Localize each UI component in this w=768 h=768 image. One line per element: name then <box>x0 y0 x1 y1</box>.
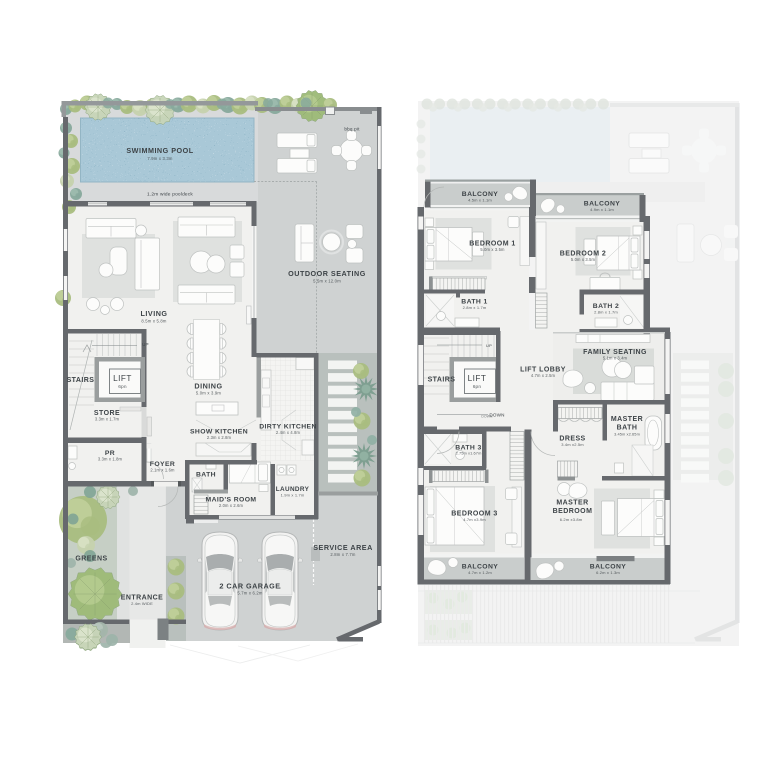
svg-text:6.2m x3.8m: 6.2m x3.8m <box>560 517 583 522</box>
svg-text:bbq pit: bbq pit <box>344 127 360 132</box>
svg-text:2.75m x1.67m: 2.75m x1.67m <box>456 451 482 456</box>
svg-text:BATH: BATH <box>196 472 216 479</box>
svg-text:MASTER: MASTER <box>611 416 643 423</box>
svg-text:6pn: 6pn <box>473 384 482 390</box>
svg-text:SERVICE AREA: SERVICE AREA <box>313 543 373 552</box>
svg-text:2.8m x 7.7m: 2.8m x 7.7m <box>330 552 356 557</box>
svg-text:SWIMMING POOL: SWIMMING POOL <box>126 146 193 155</box>
svg-text:4.7m x 1.2m: 4.7m x 1.2m <box>468 570 492 575</box>
svg-text:STAIRS: STAIRS <box>67 377 95 384</box>
svg-text:2.8m x 1.7m: 2.8m x 1.7m <box>463 305 487 310</box>
svg-text:5.0m x 3.5m: 5.0m x 3.5m <box>571 257 596 262</box>
svg-text:5.0m x 3.9m: 5.0m x 3.9m <box>196 391 222 396</box>
svg-text:LIFT: LIFT <box>468 374 487 383</box>
svg-text:MASTER: MASTER <box>556 500 588 507</box>
svg-text:3.3m x 1.7m: 3.3m x 1.7m <box>95 417 120 422</box>
svg-text:4.9m x 1.1m: 4.9m x 1.1m <box>590 207 614 212</box>
svg-text:5.5m x 12.0m: 5.5m x 12.0m <box>313 279 341 284</box>
svg-text:5.7m x 6.2m: 5.7m x 6.2m <box>237 591 263 596</box>
svg-text:2 CAR GARAGE: 2 CAR GARAGE <box>219 582 280 591</box>
svg-text:4.7m x 2.5m: 4.7m x 2.5m <box>531 373 556 378</box>
svg-text:3.4m x2.5m: 3.4m x2.5m <box>561 442 584 447</box>
svg-text:2.3m x 2.8m: 2.3m x 2.8m <box>207 435 232 440</box>
svg-text:5.0m x 3.5m: 5.0m x 3.5m <box>480 247 505 252</box>
svg-text:UP: UP <box>486 343 492 348</box>
svg-text:1.9m x 1.7m: 1.9m x 1.7m <box>281 493 305 498</box>
svg-text:2.1m x 1.6m: 2.1m x 1.6m <box>150 468 175 473</box>
svg-text:7.9m x 3.3m: 7.9m x 3.3m <box>147 156 173 161</box>
svg-text:2.0m x 2.6m: 2.0m x 2.6m <box>219 503 244 508</box>
svg-text:6.2m x 1.3m: 6.2m x 1.3m <box>596 570 620 575</box>
svg-text:GREENS: GREENS <box>75 556 107 563</box>
svg-text:2.4m WIDE: 2.4m WIDE <box>131 601 153 606</box>
svg-text:OUTDOOR SEATING: OUTDOOR SEATING <box>288 269 366 278</box>
svg-text:2.4m x 4.8m: 2.4m x 4.8m <box>276 430 301 435</box>
svg-text:4.7m x3.9m: 4.7m x3.9m <box>463 517 486 522</box>
svg-text:LIVING: LIVING <box>141 309 168 318</box>
svg-text:4.5m x 1.1m: 4.5m x 1.1m <box>468 198 492 203</box>
svg-text:BEDROOM: BEDROOM <box>553 508 593 515</box>
svg-text:DINING: DINING <box>194 382 222 391</box>
svg-text:LIFT: LIFT <box>113 374 132 383</box>
svg-text:6pn: 6pn <box>118 384 127 390</box>
svg-text:DOWN: DOWN <box>481 415 493 419</box>
svg-text:1.2m wide pooldeck: 1.2m wide pooldeck <box>147 192 193 198</box>
svg-text:3.45m x2.65m: 3.45m x2.65m <box>614 432 640 437</box>
svg-text:STAIRS: STAIRS <box>428 377 456 384</box>
svg-text:BATH: BATH <box>617 425 638 432</box>
svg-text:3.3m x 1.8m: 3.3m x 1.8m <box>98 457 123 462</box>
svg-text:8.5m x 5.8m: 8.5m x 5.8m <box>141 319 167 324</box>
svg-text:UP: UP <box>142 342 149 347</box>
svg-text:2.8m x 1.7m: 2.8m x 1.7m <box>594 310 618 315</box>
svg-text:5.1m x 3.4m: 5.1m x 3.4m <box>603 356 628 361</box>
